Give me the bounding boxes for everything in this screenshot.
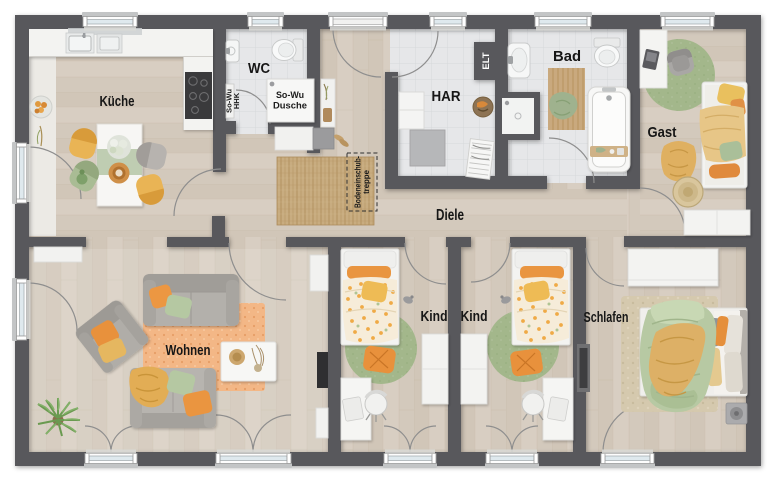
- svg-text:Küche: Küche: [100, 94, 135, 110]
- svg-text:Kind: Kind: [421, 309, 448, 325]
- svg-text:Wohnen: Wohnen: [166, 342, 211, 359]
- svg-text:HAR: HAR: [432, 88, 461, 105]
- svg-text:ELT: ELT: [481, 52, 492, 69]
- svg-text:Gast: Gast: [648, 124, 677, 141]
- svg-text:Bad: Bad: [553, 48, 581, 65]
- svg-text:So-Wu: So-Wu: [276, 90, 304, 100]
- svg-text:Diele: Diele: [436, 207, 464, 224]
- svg-text:Kind: Kind: [461, 309, 488, 325]
- svg-text:WC: WC: [248, 61, 270, 77]
- svg-text:Dusche: Dusche: [273, 101, 307, 111]
- svg-text:Schlafen: Schlafen: [584, 310, 629, 326]
